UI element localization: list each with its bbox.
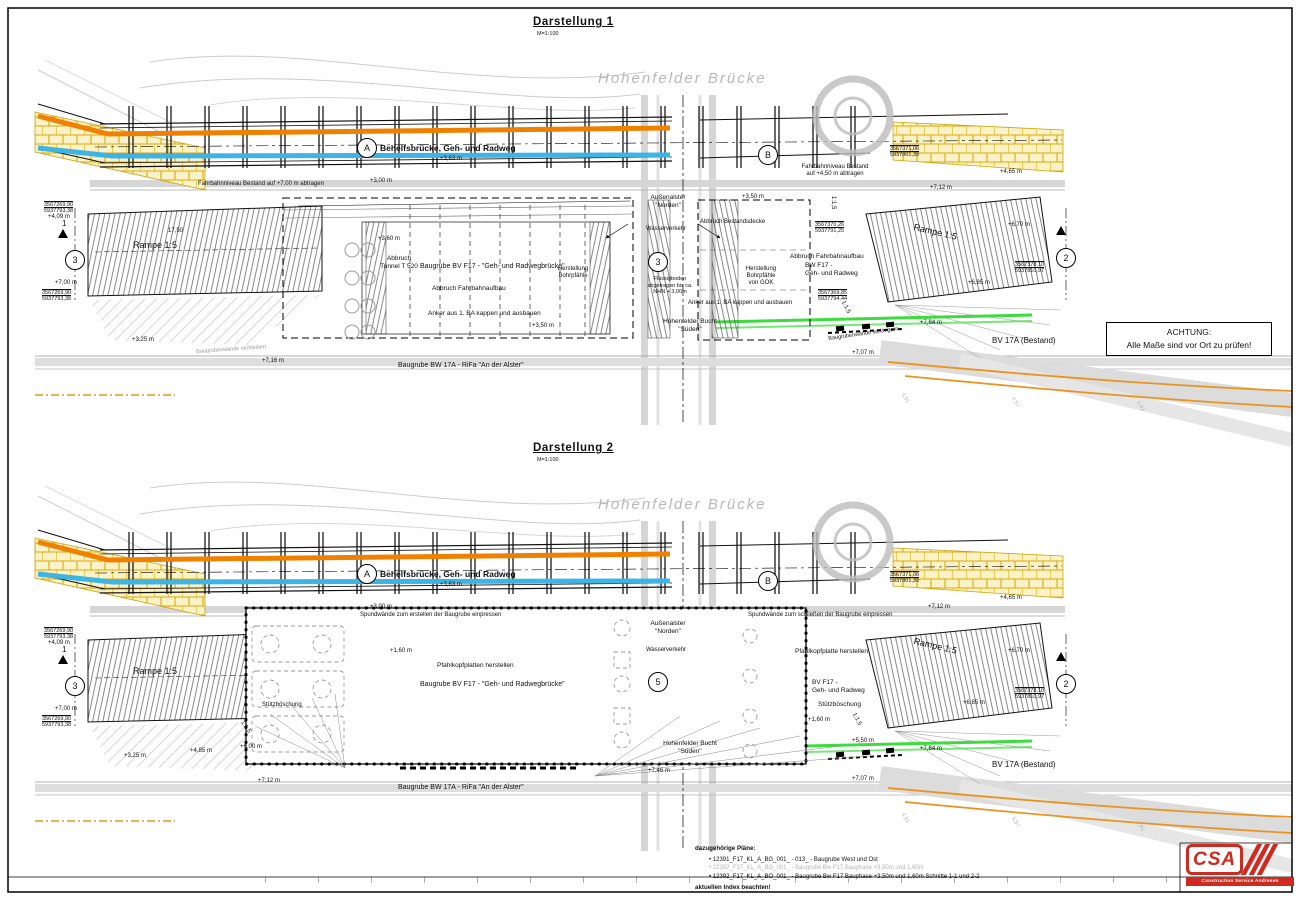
line2: Geh- und Radweg xyxy=(805,270,858,278)
line1: Fahrbahnniveau Bestand xyxy=(790,164,880,171)
line1: Herstellung xyxy=(738,266,784,273)
coord-y: 5937791,25 xyxy=(815,228,844,234)
coordinate-pair: 3567269,90 5937793,38 xyxy=(42,290,71,303)
axis-marker-3: 3 xyxy=(65,676,85,696)
elevation: +4,85 m xyxy=(190,748,212,755)
support-slope-label: Stützböschung xyxy=(818,701,861,709)
line3: NHN + 3,00m xyxy=(632,289,708,296)
elevation: +7,64 m xyxy=(920,320,942,327)
bw-f17-label: BW F17 - Geh- und Radweg xyxy=(805,262,858,278)
temp-bridge-label: Behelfsbrücke, Geh- und Radweg xyxy=(380,569,516,579)
elevation: +7,07 m xyxy=(852,776,874,783)
plan-text: 12392_F17_KL_A_BG_001_ - Baugrube Bw F17… xyxy=(713,865,924,871)
elevation: +4,09 m xyxy=(48,640,70,647)
coordinate-pair: 3567371,06 5937801,39 xyxy=(890,146,919,159)
pit-17a-label: Baugrube BW 17A - RiFa "An der Alster" xyxy=(398,362,524,370)
elevation: +7,12 m xyxy=(928,604,950,611)
elevation: +3,50 m xyxy=(742,194,764,201)
liquid-soil-note: Flüssigboden abgetragen bis ca. NHN + 3,… xyxy=(632,276,708,296)
drawing-sheet: Darstellung 1 M=1:100 Hohenfelder Brücke… xyxy=(0,0,1300,900)
line2: auf +4,50 m abtragen xyxy=(790,171,880,178)
demolition-roadway-label: Abbruch Fahrbahnaufbau xyxy=(432,285,506,293)
bored-piles-label: Herstellung Bohrpfähle xyxy=(550,266,596,280)
elevation: +7,12 m xyxy=(258,778,280,785)
plan-reference: • 12391_F17_KL_A_BG_001_ - 013_ - Baugru… xyxy=(709,856,979,864)
aussenalster-label: Außenalster "Norden" xyxy=(636,194,700,210)
elevation: +4,09 m xyxy=(48,214,70,221)
bv17a-label: BV 17A (Bestand) xyxy=(992,336,1056,346)
elevation: +6,00 m xyxy=(240,744,262,751)
bv17a-label: BV 17A (Bestand) xyxy=(992,760,1056,770)
coord-y: 5937793,38 xyxy=(42,722,71,728)
water-traffic-label: Wasserverkehr xyxy=(630,647,702,654)
benchmark-triangle-icon xyxy=(1056,226,1066,235)
elevation: +7,64 m xyxy=(920,746,942,753)
pit-17a-label: Baugrube BW 17A - RiFa "An der Alster" xyxy=(398,784,524,792)
bullet-icon: • xyxy=(709,865,711,871)
axis-marker-2: 2 xyxy=(1056,248,1076,268)
coord-y: 5937801,39 xyxy=(890,152,919,158)
elevation: +7,00 m xyxy=(55,280,77,287)
line1: BW F17 - xyxy=(805,262,858,270)
view2-excavation-pit xyxy=(246,608,870,776)
coordinate-pair: 3567371,06 5937801,39 xyxy=(890,572,919,585)
pile-cap-label: Pfahlkopfplatte herstellen xyxy=(795,648,868,656)
coord-y: 5937793,38 xyxy=(42,296,71,302)
coordinate-pair: 3567378,10 5937810,97 xyxy=(1015,688,1044,701)
coord-y: 5937810,97 xyxy=(1015,268,1044,274)
axis-marker-5: 5 xyxy=(648,672,668,692)
ramp-label: Rampe 1:5 xyxy=(133,666,177,677)
demolition-deck-label: Abbruch Bestandsdecke xyxy=(700,219,765,226)
coordinate-pair: 3567370,26 5937791,25 xyxy=(815,222,844,235)
pit-f17-label: Baugrube BV F17 - "Geh- und Radwegbrücke… xyxy=(420,263,565,271)
line2: Bohrpfähle xyxy=(738,273,784,280)
temp-bridge-label: Behelfsbrücke, Geh- und Radweg xyxy=(380,143,516,153)
sheet-pile-note-left: Spundwände zum erstellen der Baugrube ei… xyxy=(360,612,501,619)
line1: BV F17 - xyxy=(812,679,865,687)
note-remove-roadlevel: Fahrbahnniveau Bestand auf +7,00 m abtra… xyxy=(198,181,324,188)
coordinate-pair: 3567378,10 5937810,97 xyxy=(1015,262,1044,275)
line1: Außenalster xyxy=(636,194,700,202)
line2: Bohrpfähle xyxy=(550,273,596,280)
line2: "Süden" xyxy=(650,748,730,756)
benchmark-triangle-icon xyxy=(58,229,68,238)
elevation: +7,46 m xyxy=(648,768,670,775)
elevation: +6,85 m xyxy=(968,280,990,287)
elevation: +1,60 m xyxy=(390,648,412,655)
elevation: +5,50 m xyxy=(852,738,874,745)
logo-subtitle: Construction Service Andresen xyxy=(1186,877,1294,886)
elevation: +3,25 m xyxy=(132,337,154,344)
elevation: +6,70 m xyxy=(1008,648,1030,655)
elevation: +4,65 m xyxy=(1000,169,1022,176)
piles-gok-label: Herstellung Bohrpfähle von GOK xyxy=(738,266,784,288)
elevation: +7,12 m xyxy=(930,185,952,192)
attention-text: Alle Maße sind vor Ort zu prüfen! xyxy=(1111,339,1267,352)
line1: Flüssigboden xyxy=(632,276,708,283)
line2: Geh- und Radweg xyxy=(812,687,865,695)
line1: Abbruch xyxy=(368,255,430,263)
pile-caps-label: Pfahlkopfplatten herstellen xyxy=(437,662,514,670)
benchmark-triangle-icon xyxy=(1056,652,1066,661)
demolition-roadway-label: Abbruch Fahrbahnaufbau xyxy=(790,253,864,261)
attention-title: ACHTUNG: xyxy=(1111,326,1267,339)
elevation: +6,85 m xyxy=(963,700,985,707)
view1-scale: M=1:100 xyxy=(537,31,559,38)
line2: abgetragen bis ca. xyxy=(632,283,708,290)
related-plans-title: dazugehörige Pläne: xyxy=(695,845,979,853)
elevation: +7,16 m xyxy=(262,358,284,365)
elevation: +3,63 m xyxy=(440,582,462,589)
elevation: +3,00 m xyxy=(370,604,392,611)
company-logo: CSA Construction Service Andresen xyxy=(1186,844,1294,886)
coordinate-pair: 3567269,90 5937793,38 xyxy=(44,628,73,641)
view2-title: Darstellung 2 xyxy=(533,442,614,456)
ramp-label: Rampe 1:5 xyxy=(133,240,177,251)
anchor-note: Anker aus 1. BA kappen und ausbauen xyxy=(688,300,792,307)
related-plans-block: dazugehörige Pläne: • 12391_F17_KL_A_BG_… xyxy=(695,845,979,892)
elevation: +3,60 m xyxy=(378,236,400,243)
axis-marker-3: 3 xyxy=(65,250,85,270)
bullet-icon: • xyxy=(709,874,711,880)
elevation: +4,65 m xyxy=(1000,595,1022,602)
axis-marker-2: 2 xyxy=(1056,674,1076,694)
water-traffic-label: Wasserverkehr xyxy=(630,226,702,233)
slope-ratio: 1:1,5 xyxy=(829,196,836,209)
section-marker-b: B xyxy=(758,571,778,591)
axis-marker-3-center: 3 xyxy=(648,252,668,272)
bullet-icon: • xyxy=(709,857,711,863)
attention-note: ACHTUNG: Alle Maße sind vor Ort zu prüfe… xyxy=(1106,322,1272,356)
bay-label: Hohenfelder Bucht "Süden" xyxy=(650,740,730,756)
axis-label-1: 1 xyxy=(62,645,66,655)
axis-label-1: 1 xyxy=(62,219,66,229)
section-marker-b: B xyxy=(758,145,778,165)
bv-f17-label: BV F17 - Geh- und Radweg xyxy=(812,679,865,695)
elevation: +7,00 m xyxy=(55,706,77,713)
line1: Außenalster xyxy=(636,620,700,628)
line2: "Süden" xyxy=(650,326,730,334)
support-slope-label: Stützböschung xyxy=(262,702,302,709)
view2-scale: M=1:100 xyxy=(537,457,559,464)
elevation: +3,25 m xyxy=(124,753,146,760)
line3: von GOK xyxy=(738,280,784,287)
line1: Hohenfelder Bucht xyxy=(650,740,730,748)
line1: Hohenfelder Bucht xyxy=(650,318,730,326)
elevation: +6,70 m xyxy=(1008,222,1030,229)
line1: Herstellung xyxy=(550,266,596,273)
anchor-note: Anker aus 1. BA kappen und ausbauen xyxy=(428,310,541,318)
elevation: +1,60 m xyxy=(808,717,830,724)
bay-label: Hohenfelder Bucht "Süden" xyxy=(650,318,730,334)
plan-text: 12391_F17_KL_A_BG_001_ - 013_ - Baugrube… xyxy=(713,857,878,863)
coord-y: 5937801,39 xyxy=(890,578,919,584)
sheet-pile-note-right: Spundwände zum schließen der Baugrube ei… xyxy=(748,612,892,619)
coord-y: 5937810,97 xyxy=(1015,694,1044,700)
logo-stripes-icon xyxy=(1241,844,1278,875)
bridge-name: Hohenfelder Brücke xyxy=(598,496,767,514)
cad-linework xyxy=(0,0,1300,900)
line2: "Norden" xyxy=(636,628,700,636)
bridge-name: Hohenfelder Brücke xyxy=(598,70,767,88)
elevation: +3,50 m xyxy=(532,323,554,330)
note-remove-right: Fahrbahnniveau Bestand auf +4,50 m abtra… xyxy=(790,164,880,178)
elevation: +3,63 m xyxy=(440,156,462,163)
line2: "Norden" xyxy=(636,202,700,210)
logo-text: CSA xyxy=(1186,844,1243,875)
logo-top: CSA xyxy=(1186,844,1294,875)
plan-reference: • 12392_F17_KL_A_BG_001_ - Baugrube Bw F… xyxy=(709,864,979,872)
section-marker-a: A xyxy=(357,564,377,584)
coordinate-pair: 3567269,90 5937793,38 xyxy=(44,202,73,215)
coordinate-pair: 3567269,90 5937793,38 xyxy=(42,716,71,729)
elevation: +7,07 m xyxy=(852,350,874,357)
aussenalster-label: Außenalster "Norden" xyxy=(636,620,700,636)
elevation: +3,00 m xyxy=(370,178,392,185)
section-marker-a: A xyxy=(357,138,377,158)
plan-text: 12392_F17_KL_A_BO_001_ - Baugrube Bw F17… xyxy=(713,874,980,880)
benchmark-triangle-icon xyxy=(58,655,68,664)
view1-title: Darstellung 1 xyxy=(533,16,614,30)
pit-f17-label: Baugrube BV F17 - "Geh- und Radwegbrücke… xyxy=(420,681,565,689)
index-note: aktuellen Index beachten! xyxy=(695,884,979,892)
dimension: 17,50 xyxy=(168,228,183,235)
plan-reference: • 12392_F17_KL_A_BO_001_ - Baugrube Bw F… xyxy=(709,873,979,881)
